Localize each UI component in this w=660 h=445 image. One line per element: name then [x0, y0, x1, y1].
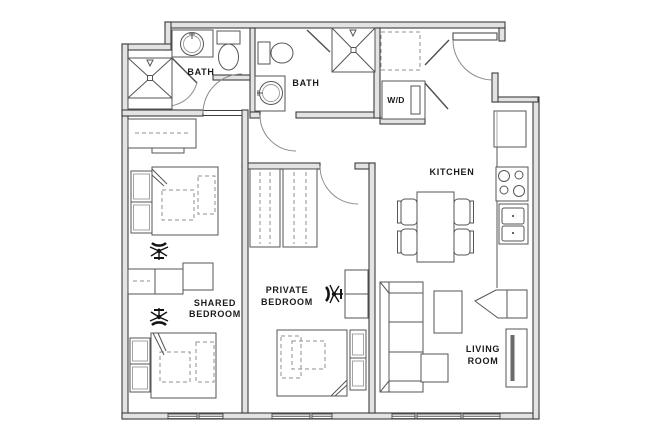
private-wardrobe: [350, 330, 366, 390]
desk-chair: [326, 285, 343, 303]
window: [272, 414, 310, 419]
coffee-table: [434, 291, 462, 333]
sofa: [380, 282, 423, 392]
dining-chair: [454, 229, 474, 255]
entry-door: [453, 33, 497, 80]
dining-set: [398, 192, 474, 262]
shower-door-1: [171, 58, 197, 106]
side-table: [421, 354, 448, 382]
shared-bed-2: [151, 333, 216, 398]
washer-dryer: [381, 32, 425, 119]
bath-2-door: [260, 115, 296, 151]
desk-chair: [150, 308, 168, 325]
fridge: [494, 111, 526, 147]
stove: [496, 167, 528, 201]
shared-wardrobe-2: [130, 338, 150, 392]
private-bedroom-label-line2: BEDROOM: [261, 297, 313, 307]
bath-2-label: BATH: [292, 78, 319, 88]
bath-2-toilet: [258, 42, 293, 64]
wd-closet-doors: [424, 40, 449, 109]
living-room-label-line2: ROOM: [468, 356, 499, 366]
bath-1-shower: [128, 58, 172, 109]
dining-chair: [398, 229, 418, 255]
tv: [511, 335, 515, 381]
private-bedroom-label-line1: PRIVATE: [266, 285, 309, 295]
window: [463, 414, 500, 419]
window: [168, 414, 197, 419]
floorplan-drawing: BATH BATH W/D KITCHEN SHARED BEDROOM PRI…: [0, 0, 660, 445]
shower-door-2: [307, 30, 330, 52]
shared-bedroom-label-line2: BEDROOM: [189, 309, 241, 319]
kitchen-fixtures: [475, 111, 528, 318]
shared-bed-1: [152, 167, 218, 235]
window: [312, 414, 332, 419]
kitchen-label: KITCHEN: [430, 167, 475, 177]
kitchen-sink: [499, 204, 528, 244]
bath-1-label: BATH: [187, 67, 214, 77]
shared-wardrobe-1: [131, 171, 152, 233]
window: [199, 414, 223, 419]
tv-console: [506, 329, 527, 387]
shared-bedroom-label-line1: SHARED: [194, 298, 236, 308]
bath-1-toilet: [217, 31, 240, 70]
dining-chair: [398, 199, 418, 225]
bath-2-shower: [332, 28, 375, 72]
window: [392, 414, 415, 419]
private-bed: [277, 330, 347, 396]
window: [417, 414, 461, 419]
shared-desks: [128, 263, 213, 294]
desk-chair: [150, 243, 168, 260]
kitchen-peninsula: [475, 290, 527, 318]
washer-dryer-label: W/D: [387, 95, 404, 105]
private-bedroom-door: [320, 166, 358, 204]
bath-2-sink: [255, 76, 285, 111]
private-closets: [250, 169, 317, 247]
floorplan: BATH BATH W/D KITCHEN SHARED BEDROOM PRI…: [0, 0, 660, 445]
bath-1-sink: [172, 30, 213, 57]
shared-dresser: [128, 119, 196, 153]
private-desk: [345, 270, 368, 318]
dining-chair: [454, 199, 474, 225]
living-room-label-line1: LIVING: [466, 344, 500, 354]
dining-table: [417, 192, 454, 262]
